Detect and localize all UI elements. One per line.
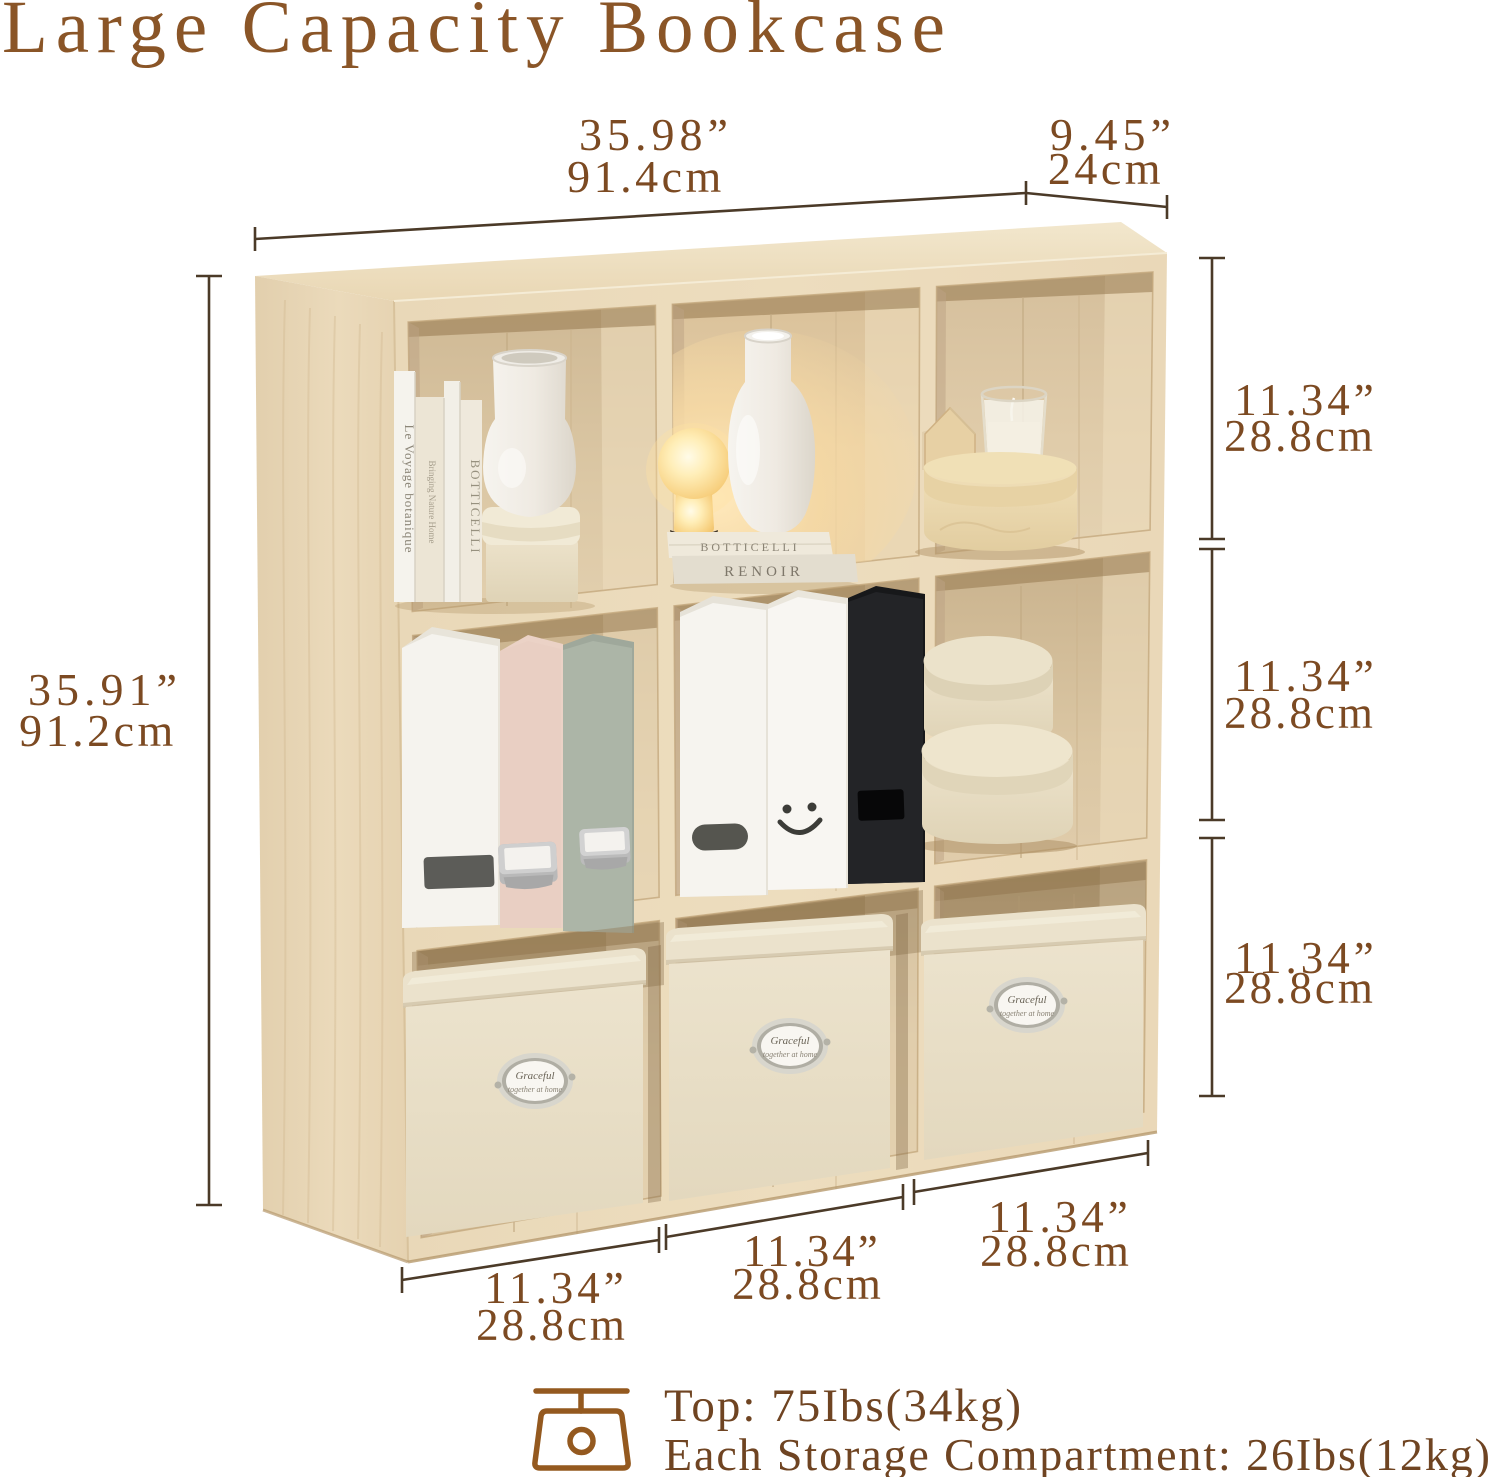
svg-text:91.2cm: 91.2cm xyxy=(19,705,177,756)
svg-text:BOTTICELLI: BOTTICELLI xyxy=(700,540,799,554)
svg-text:Each Storage Compartment: 26Ib: Each Storage Compartment: 26Ibs(12kg) xyxy=(664,1429,1492,1477)
svg-text:28.8cm: 28.8cm xyxy=(1224,963,1376,1013)
svg-text:28.8cm: 28.8cm xyxy=(980,1226,1132,1276)
svg-text:Le Voyage botanique: Le Voyage botanique xyxy=(402,425,417,554)
svg-text:Graceful: Graceful xyxy=(770,1035,809,1047)
svg-text:together at home: together at home xyxy=(763,1050,818,1059)
svg-text:Bringing Nature Home: Bringing Nature Home xyxy=(427,461,437,544)
svg-text:28.8cm: 28.8cm xyxy=(732,1259,884,1309)
svg-text:91.4cm: 91.4cm xyxy=(567,151,725,202)
svg-text:together at home: together at home xyxy=(508,1085,563,1094)
svg-text:Top: 75Ibs(34kg): Top: 75Ibs(34kg) xyxy=(664,1380,1023,1432)
svg-text:BOTTICELLI: BOTTICELLI xyxy=(468,459,483,554)
svg-text:28.8cm: 28.8cm xyxy=(1224,411,1376,461)
svg-text:RENOIR: RENOIR xyxy=(724,564,804,580)
svg-text:Graceful: Graceful xyxy=(515,1070,554,1082)
svg-text:together at home: together at home xyxy=(1000,1009,1055,1018)
svg-text:28.8cm: 28.8cm xyxy=(1224,688,1376,738)
svg-text:Graceful: Graceful xyxy=(1007,994,1046,1006)
svg-text:Large Capacity Bookcase: Large Capacity Bookcase xyxy=(2,0,953,69)
svg-text:28.8cm: 28.8cm xyxy=(476,1300,628,1350)
svg-text:24cm: 24cm xyxy=(1048,143,1164,194)
